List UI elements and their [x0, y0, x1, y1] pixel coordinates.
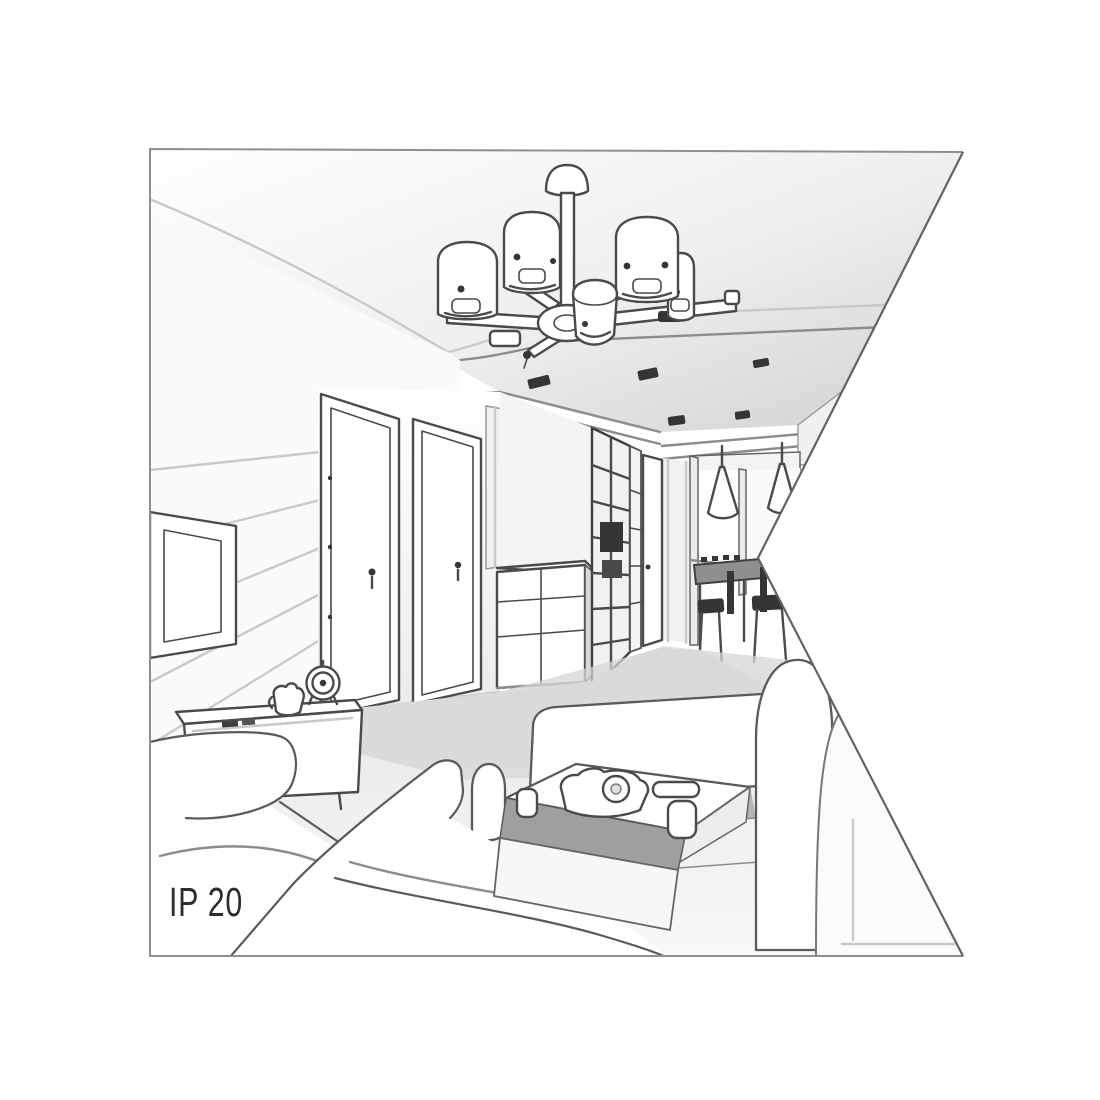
door-2: [413, 419, 481, 704]
door-handle-icon: [369, 569, 376, 576]
grid-wardrobe: [592, 428, 641, 690]
glass: [668, 801, 696, 838]
chandelier-shade-3: [616, 217, 678, 303]
cup: [517, 789, 537, 817]
room-line-drawing: [0, 0, 1100, 1100]
chest-of-drawers: [497, 561, 592, 688]
shelf-item: [602, 560, 622, 578]
door-handle-icon: [646, 565, 651, 570]
hallway-door: [643, 455, 662, 646]
chandelier-shade-5: [573, 280, 617, 345]
sofa-armrest-left: [472, 764, 505, 840]
chandelier-canopy: [546, 165, 588, 196]
dining-area: [690, 389, 885, 668]
shelf-item: [600, 522, 623, 552]
chandelier-shade-2: [504, 212, 560, 293]
chandelier-finial: [523, 351, 531, 359]
right-sofa: [816, 703, 963, 957]
plate: [653, 782, 699, 797]
door-handle-icon: [455, 562, 461, 568]
illustration-canvas: IP 20: [0, 0, 1100, 1100]
ip-rating-label: IP 20: [169, 882, 243, 923]
tv-panel: [150, 512, 236, 658]
chandelier-shade-1: [438, 242, 497, 319]
